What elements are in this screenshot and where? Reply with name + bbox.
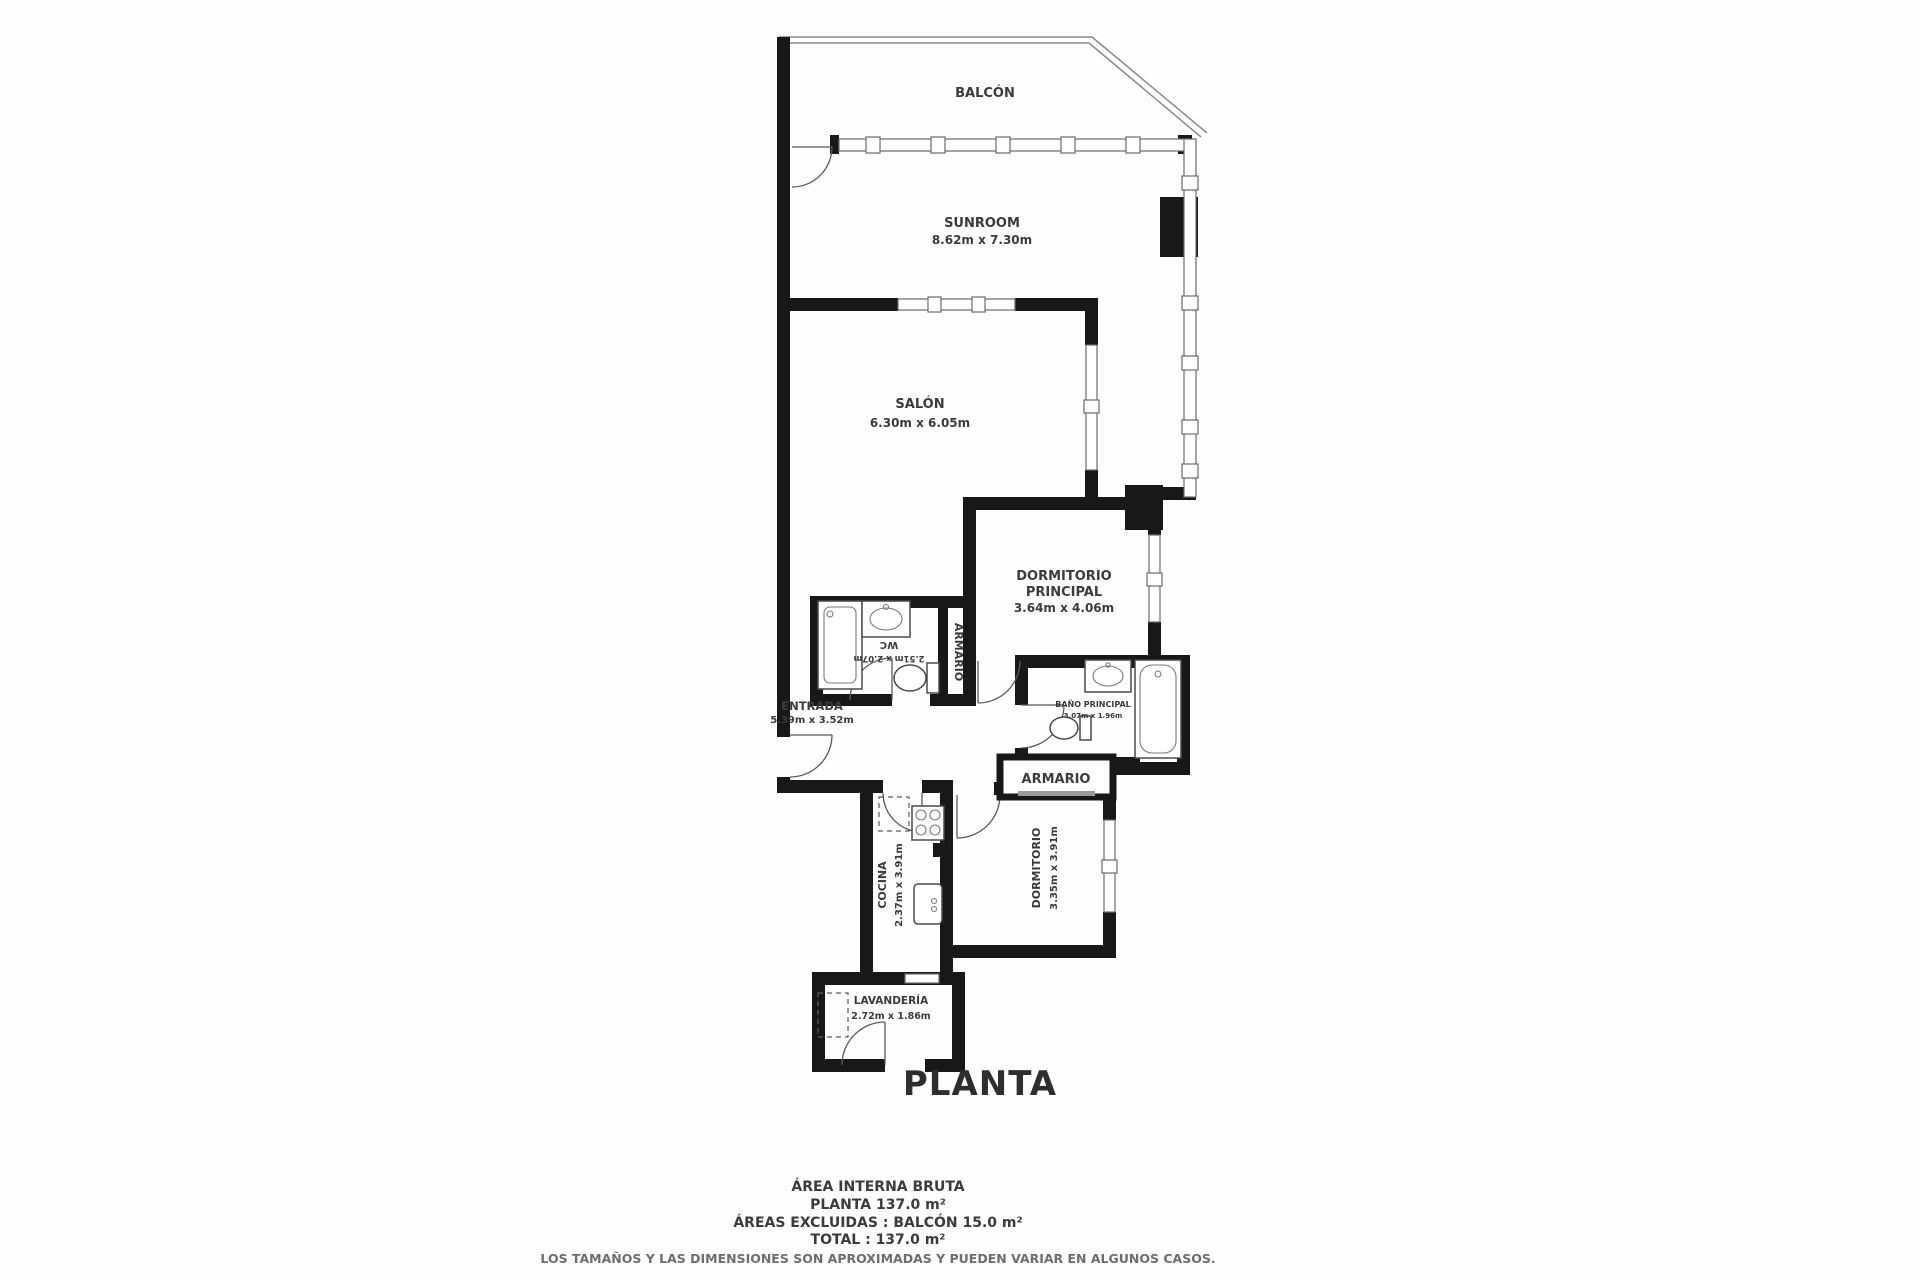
floor-plan-svg: BALCÓN SUNROOM 8.62m x 7.30m SALÓN 6.30m… (0, 0, 1920, 1280)
floor-plan-page: BALCÓN SUNROOM 8.62m x 7.30m SALÓN 6.30m… (0, 0, 1920, 1280)
label-sunroom: SUNROOM (944, 216, 1020, 231)
summary-line2: PLANTA 137.0 m² (810, 1197, 946, 1213)
door-dormitorio2 (957, 795, 1000, 838)
door-balcony (792, 147, 832, 187)
plan-footer: PLANTA ÁREA INTERNA BRUTA PLANTA 137.0 m… (540, 1064, 1215, 1266)
dims-dorm-principal: 3.64m x 4.06m (1014, 601, 1114, 615)
label-dorm-principal-2: PRINCIPAL (1026, 585, 1102, 600)
door-dorm-principal (978, 661, 1020, 703)
bathtub (1135, 660, 1181, 758)
label-balcon: BALCÓN (955, 85, 1015, 101)
summary-line1: ÁREA INTERNA BRUTA (791, 1178, 964, 1195)
windows (839, 137, 1198, 983)
label-lavanderia: LAVANDERÍA (854, 994, 929, 1007)
label-dorm-principal-1: DORMITORIO (1016, 569, 1111, 584)
label-salon: SALÓN (895, 396, 944, 412)
summary-disclaimer: LOS TAMAÑOS Y LAS DIMENSIONES SON APROXI… (540, 1251, 1215, 1266)
dims-lavanderia: 2.72m x 1.86m (851, 1011, 931, 1022)
label-armario-closet: ARMARIO (1022, 772, 1091, 787)
label-dormitorio: DORMITORIO (1030, 828, 1043, 909)
plan-title: PLANTA (903, 1064, 1057, 1104)
wc-toilet (894, 663, 939, 693)
kitchen-sink (914, 884, 942, 924)
stove (912, 806, 944, 857)
dims-dormitorio: 3.35m x 3.91m (1049, 826, 1060, 910)
dims-wc: 2.51m x 2.07m (853, 653, 924, 663)
label-armario-pasillo: ARMARIO (952, 623, 965, 681)
dims-sunroom: 8.62m x 7.30m (932, 233, 1032, 247)
label-entrada: ENTRADA (781, 699, 843, 713)
bano-sink (1085, 660, 1131, 692)
label-wc: WC (880, 639, 898, 650)
summary-line3: ÁREAS EXCLUIDAS : BALCÓN 15.0 m² (733, 1213, 1022, 1231)
label-cocina: COCINA (876, 861, 889, 909)
door-entrada (790, 735, 832, 777)
shower (818, 601, 862, 689)
walls (777, 37, 1198, 1072)
summary-line4: TOTAL : 137.0 m² (811, 1232, 946, 1248)
wc-sink (862, 601, 910, 637)
dims-bano: 3.07m x 1.96m (1064, 712, 1123, 720)
dims-cocina: 2.37m x 3.91m (894, 843, 905, 927)
dims-entrada: 5.39m x 3.52m (770, 715, 854, 726)
label-bano: BAÑO PRINCIPAL (1055, 699, 1131, 709)
dims-salon: 6.30m x 6.05m (870, 416, 970, 430)
